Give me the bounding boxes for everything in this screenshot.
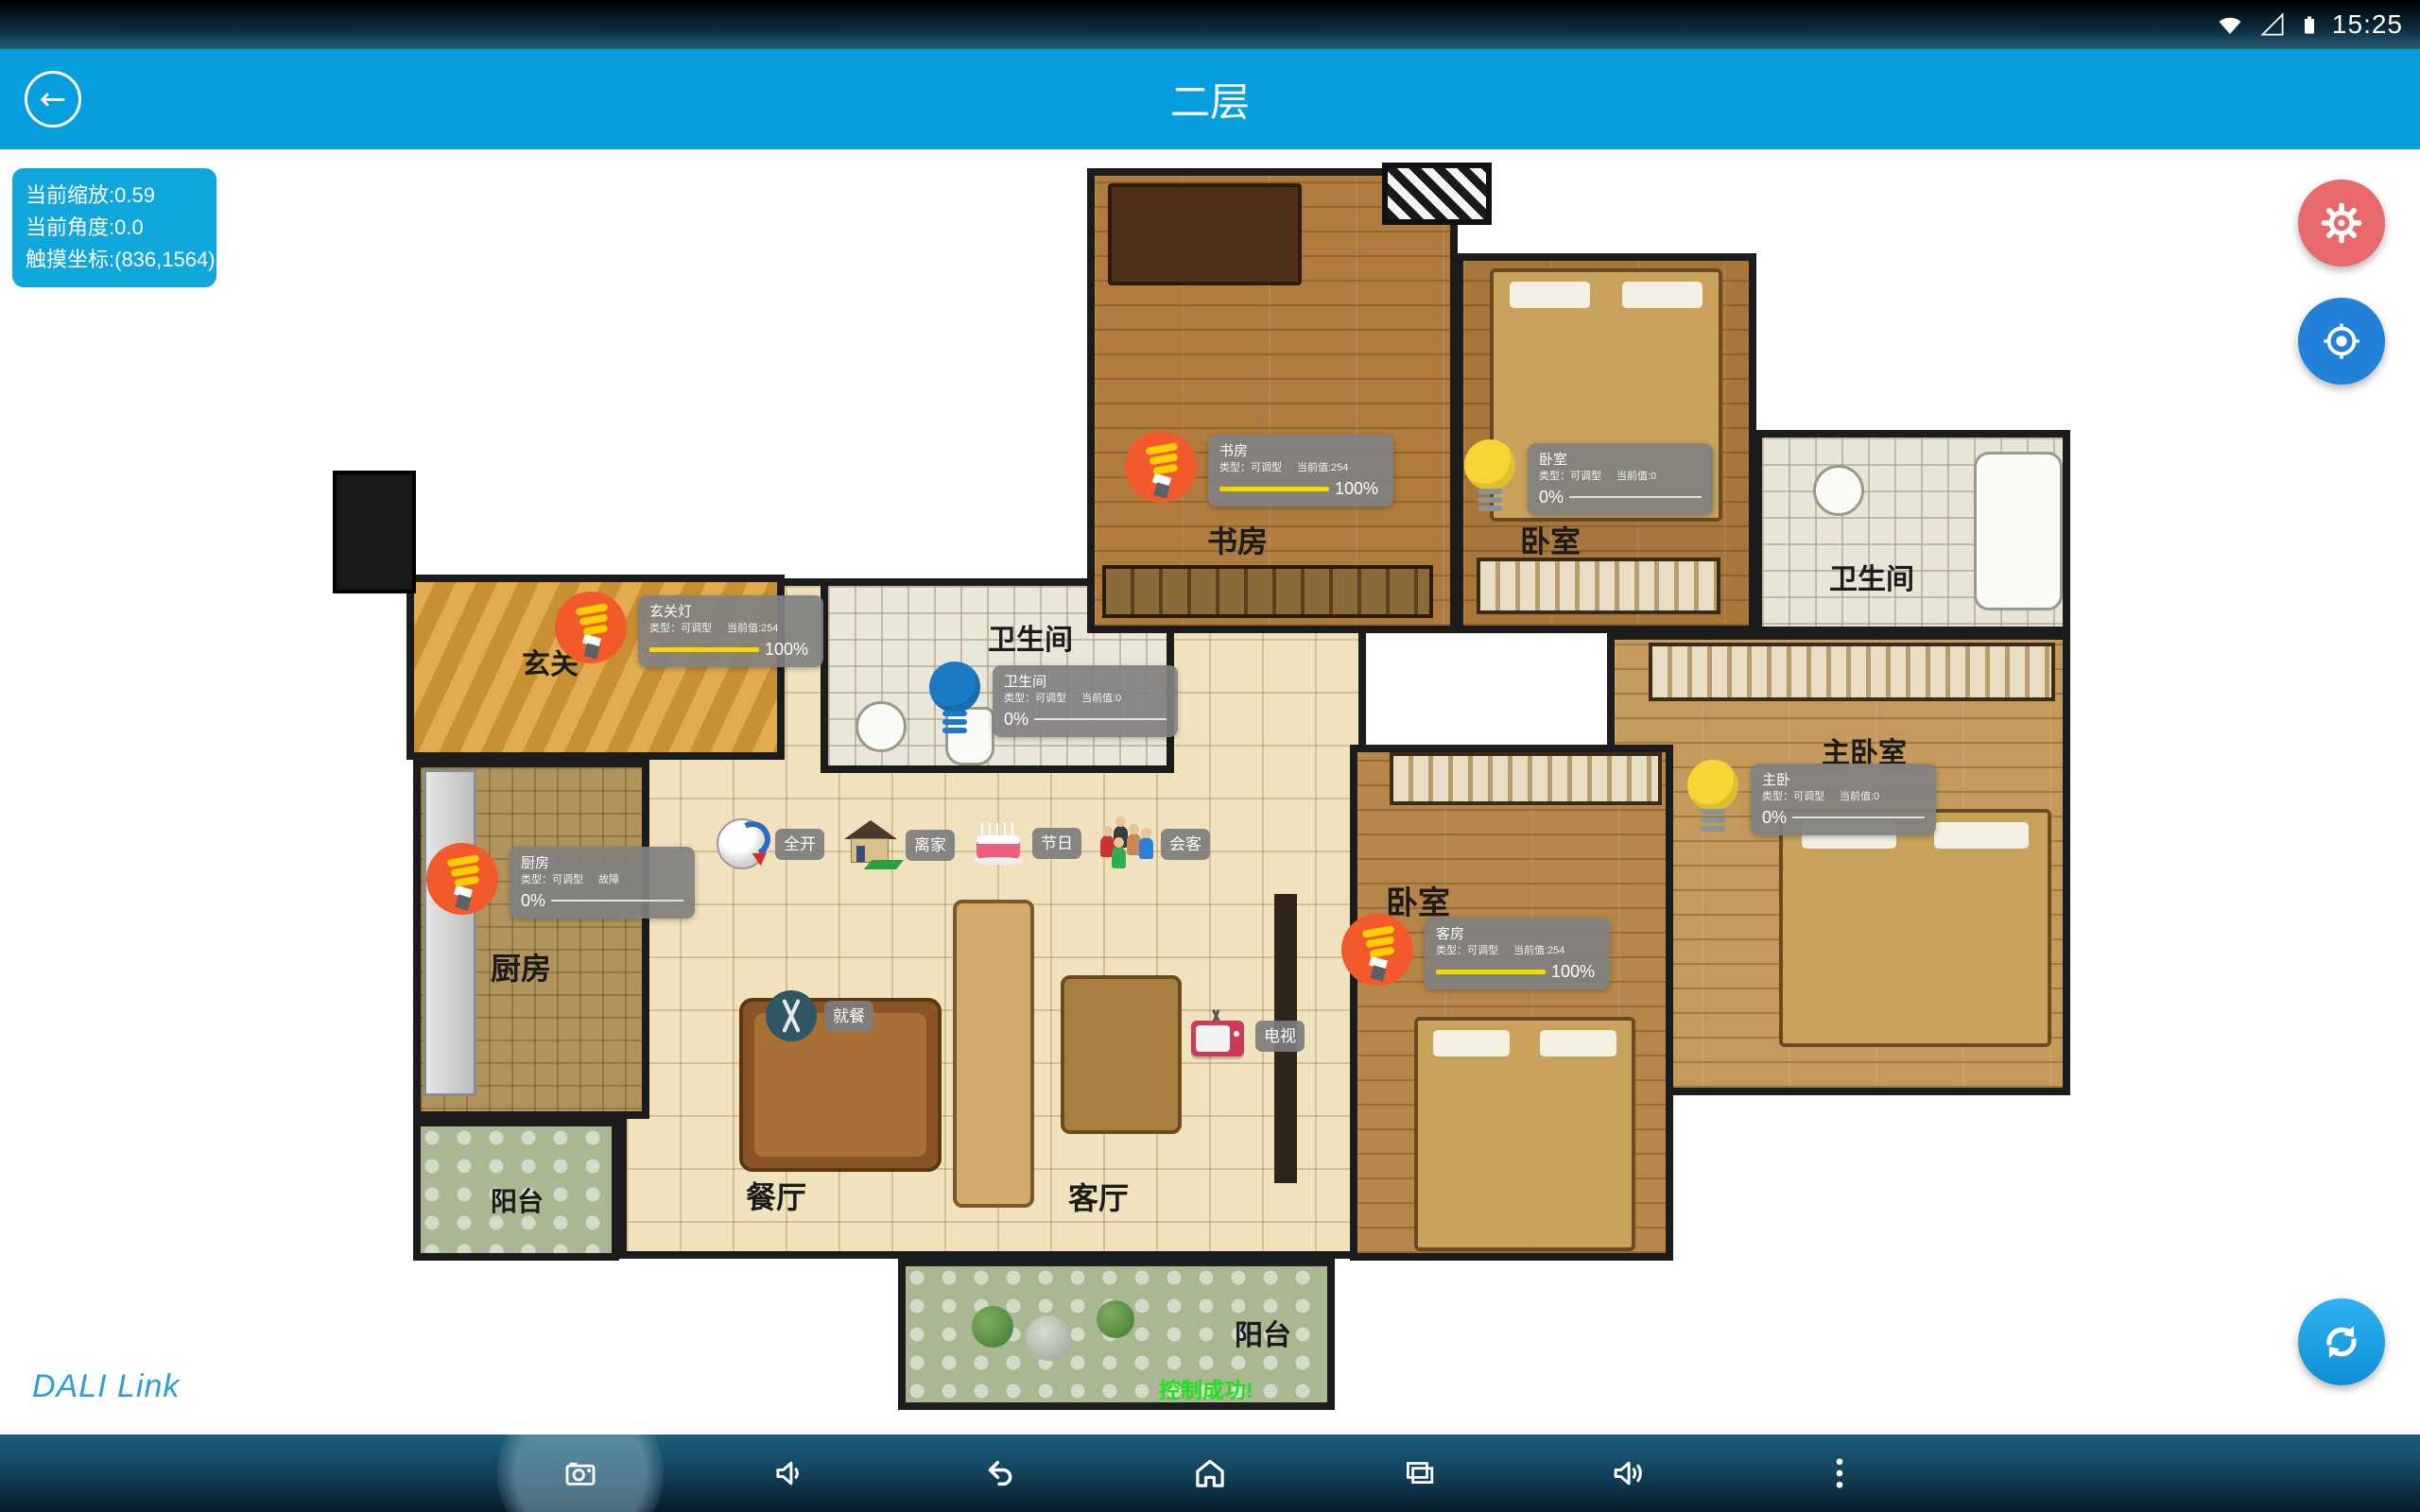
cutlery-icon <box>766 990 817 1041</box>
stone-table <box>1026 1315 1071 1361</box>
back-arrow-icon: ← <box>40 83 67 115</box>
furniture-bed <box>1414 1017 1635 1251</box>
light-name: 主卧 <box>1762 771 1925 789</box>
current-scale-text: 当前缩放:0.59 <box>26 180 203 212</box>
scene-guests[interactable]: 会客 <box>1098 818 1210 869</box>
gear-icon <box>2317 198 2366 248</box>
light-name: 卧室 <box>1539 451 1702 469</box>
brightness-percent: 100% <box>765 640 808 660</box>
light-status: 当前值:254 <box>1297 461 1348 474</box>
volume-down-icon <box>770 1453 810 1493</box>
home-button[interactable] <box>1189 1452 1231 1494</box>
plant <box>1097 1300 1134 1338</box>
furniture-coffee-table <box>1061 975 1182 1134</box>
light-tooltip: 厨房 类型：可调型故障 0% <box>510 847 695 919</box>
cake-icon <box>972 818 1025 868</box>
scene-button-festival[interactable]: 节日 <box>1032 828 1081 859</box>
elevator-shaft <box>1382 163 1492 225</box>
light-status: 当前值:254 <box>727 622 778 635</box>
duct-structure <box>333 471 416 593</box>
brightness-percent: 0% <box>1762 808 1787 828</box>
recent-apps-icon <box>1400 1453 1440 1493</box>
bathroom-sink <box>1813 465 1864 516</box>
overflow-menu-icon <box>1820 1453 1859 1493</box>
light-tooltip: 主卧 类型：可调型当前值:0 0% <box>1751 764 1936 835</box>
light-tooltip: 卧室 类型：可调型当前值:0 0% <box>1528 443 1713 515</box>
light-control-guest-room[interactable]: 客房 类型：可调型当前值:254 100% <box>1425 918 1610 989</box>
light-type: 类型：可调型 <box>1219 461 1282 474</box>
light-name: 玄关灯 <box>649 603 812 621</box>
bulb-blue-icon[interactable] <box>926 661 983 735</box>
light-tooltip: 客房 类型：可调型当前值:254 100% <box>1425 918 1610 989</box>
brightness-bar <box>649 647 759 652</box>
recent-apps-button[interactable] <box>1399 1452 1441 1494</box>
current-angle-text: 当前角度:0.0 <box>26 212 203 244</box>
status-bar: 15:25 <box>0 0 2420 49</box>
light-status: 当前值:0 <box>1840 790 1879 803</box>
light-control-master-bedroom[interactable]: 主卧 类型：可调型当前值:0 0% <box>1751 764 1936 835</box>
cfl-bulb-on-icon[interactable] <box>1341 914 1413 986</box>
cfl-bulb-on-icon[interactable] <box>426 843 498 915</box>
zone-tag-tv[interactable]: 电视 <box>1189 1009 1305 1062</box>
wifi-icon <box>2213 10 2247 39</box>
plant <box>972 1306 1013 1348</box>
tv-icon <box>1189 1009 1248 1062</box>
light-control-bedroom-top[interactable]: 卧室 类型：可调型当前值:0 0% <box>1528 443 1713 515</box>
room-label-dining: 餐厅 <box>746 1174 806 1217</box>
room-label-balcony-bottom: 阳台 <box>1235 1312 1291 1353</box>
people-icon <box>1098 818 1153 869</box>
light-status: 故障 <box>598 873 619 886</box>
locate-fab[interactable] <box>2298 298 2385 385</box>
brightness-bar <box>1792 816 1925 818</box>
room-label-kitchen: 厨房 <box>491 945 551 988</box>
back-nav-button[interactable] <box>979 1452 1021 1494</box>
android-navigation-bar <box>0 1435 2420 1512</box>
scene-all-on[interactable]: 全开 <box>717 818 824 869</box>
room-label-bathroom-top-right: 卫生间 <box>1829 556 1914 597</box>
map-info-overlay: 当前缩放:0.59 当前角度:0.0 触摸坐标:(836,1564) <box>12 168 216 287</box>
light-tooltip: 玄关灯 类型：可调型当前值:254 100% <box>638 595 823 667</box>
overflow-menu-button[interactable] <box>1819 1452 1860 1494</box>
light-control-kitchen[interactable]: 厨房 类型：可调型故障 0% <box>510 847 695 919</box>
scene-button-all-on[interactable]: 全开 <box>775 829 824 860</box>
room-label-guest-bedroom: 卧室 <box>1386 877 1450 923</box>
brightness-bar <box>1436 970 1546 974</box>
brightness-percent: 0% <box>1004 710 1028 730</box>
bathroom-sink <box>856 701 907 752</box>
room-label-balcony-left: 阳台 <box>491 1181 544 1219</box>
dial-icon <box>717 818 768 869</box>
light-status: 当前值:254 <box>1513 944 1564 957</box>
sync-icon <box>2316 1316 2367 1367</box>
target-icon <box>2317 317 2366 366</box>
brightness-percent: 100% <box>1335 479 1378 499</box>
brightness-bar <box>1219 487 1329 491</box>
volume-down-button[interactable] <box>769 1452 811 1494</box>
signal-strength-icon <box>2258 10 2287 39</box>
brightness-bar <box>1034 718 1167 720</box>
dali-link-logo: DALI Link <box>32 1368 180 1405</box>
brightness-percent: 0% <box>521 891 545 911</box>
cfl-bulb-on-icon[interactable] <box>1125 431 1197 503</box>
furniture-wardrobe <box>1649 643 2055 701</box>
light-status: 当前值:0 <box>1616 470 1656 483</box>
bulb-off-icon[interactable] <box>1461 439 1518 513</box>
settings-fab[interactable] <box>2298 180 2385 266</box>
dining-tag-button[interactable]: 就餐 <box>824 1001 873 1032</box>
back-button[interactable]: ← <box>25 71 81 128</box>
light-type: 类型：可调型 <box>649 622 712 635</box>
back-icon <box>980 1453 1020 1493</box>
light-type: 类型：可调型 <box>1762 790 1824 803</box>
furniture-sofa <box>953 900 1034 1208</box>
kitchen-counter <box>423 769 476 1096</box>
light-tooltip: 书房 类型：可调型当前值:254 100% <box>1208 435 1393 507</box>
touch-coordinates-text: 触摸坐标:(836,1564) <box>26 244 203 276</box>
light-control-bathroom[interactable]: 卫生间 类型：可调型当前值:0 0% <box>993 665 1178 737</box>
page-title: 二层 <box>1170 71 1250 129</box>
brightness-bar <box>1569 496 1702 498</box>
screenshot-button[interactable] <box>560 1452 601 1494</box>
control-success-toast: 控制成功! <box>1159 1372 1253 1404</box>
scene-away[interactable]: 离家 <box>843 818 955 871</box>
light-type: 类型：可调型 <box>1004 692 1066 705</box>
volume-up-icon <box>1610 1453 1650 1493</box>
light-control-study[interactable]: 书房 类型：可调型当前值:254 100% <box>1208 435 1393 507</box>
brightness-bar <box>551 900 683 902</box>
room-label-study: 书房 <box>1207 518 1268 561</box>
scene-festival[interactable]: 节日 <box>972 818 1081 868</box>
furniture-bookshelf <box>1102 565 1433 618</box>
furniture-wardrobe <box>1390 752 1662 805</box>
room-label-bedroom-top: 卧室 <box>1520 518 1581 561</box>
scene-button-guests[interactable]: 会客 <box>1161 829 1210 860</box>
volume-up-button[interactable] <box>1609 1452 1651 1494</box>
light-name: 书房 <box>1219 442 1382 460</box>
scene-button-away[interactable]: 离家 <box>906 830 955 861</box>
bathtub <box>1974 452 2063 610</box>
light-type: 类型：可调型 <box>1539 470 1601 483</box>
room-label-bathroom-middle: 卫生间 <box>988 616 1073 658</box>
house-icon <box>843 818 898 871</box>
floor-plan-canvas[interactable]: 玄关 书房 卧室 卫生间 卫生间 主卧室 卧室 厨房 餐厅 客厅 阳台 阳台 玄… <box>0 0 2420 1512</box>
bulb-off-icon[interactable] <box>1685 760 1741 833</box>
cfl-bulb-on-icon[interactable] <box>555 592 627 663</box>
screenshot-camera-icon <box>561 1453 600 1493</box>
furniture-desk <box>1108 183 1302 285</box>
brightness-percent: 100% <box>1551 962 1595 982</box>
home-icon <box>1190 1453 1230 1493</box>
room-label-living: 客厅 <box>1068 1175 1129 1218</box>
furniture-bed <box>1779 809 2051 1047</box>
brightness-percent: 0% <box>1539 488 1564 507</box>
light-name: 客房 <box>1436 925 1599 943</box>
battery-icon <box>2298 8 2321 42</box>
light-tooltip: 卫生间 类型：可调型当前值:0 0% <box>993 665 1178 737</box>
furniture-wardrobe <box>1477 558 1720 614</box>
tv-tag-button[interactable]: 电视 <box>1255 1021 1305 1052</box>
light-status: 当前值:0 <box>1081 692 1121 705</box>
app-header: ← 二层 <box>0 49 2420 149</box>
light-type: 类型：可调型 <box>1436 944 1498 957</box>
zone-tag-dining[interactable]: 就餐 <box>766 990 873 1041</box>
sync-fab[interactable] <box>2298 1298 2385 1385</box>
light-name: 厨房 <box>521 854 683 872</box>
light-control-entry-lamp[interactable]: 玄关灯 类型：可调型当前值:254 100% <box>638 595 823 667</box>
light-type: 类型：可调型 <box>521 873 583 886</box>
light-name: 卫生间 <box>1004 673 1167 691</box>
clock-time: 15:25 <box>2332 9 2403 40</box>
